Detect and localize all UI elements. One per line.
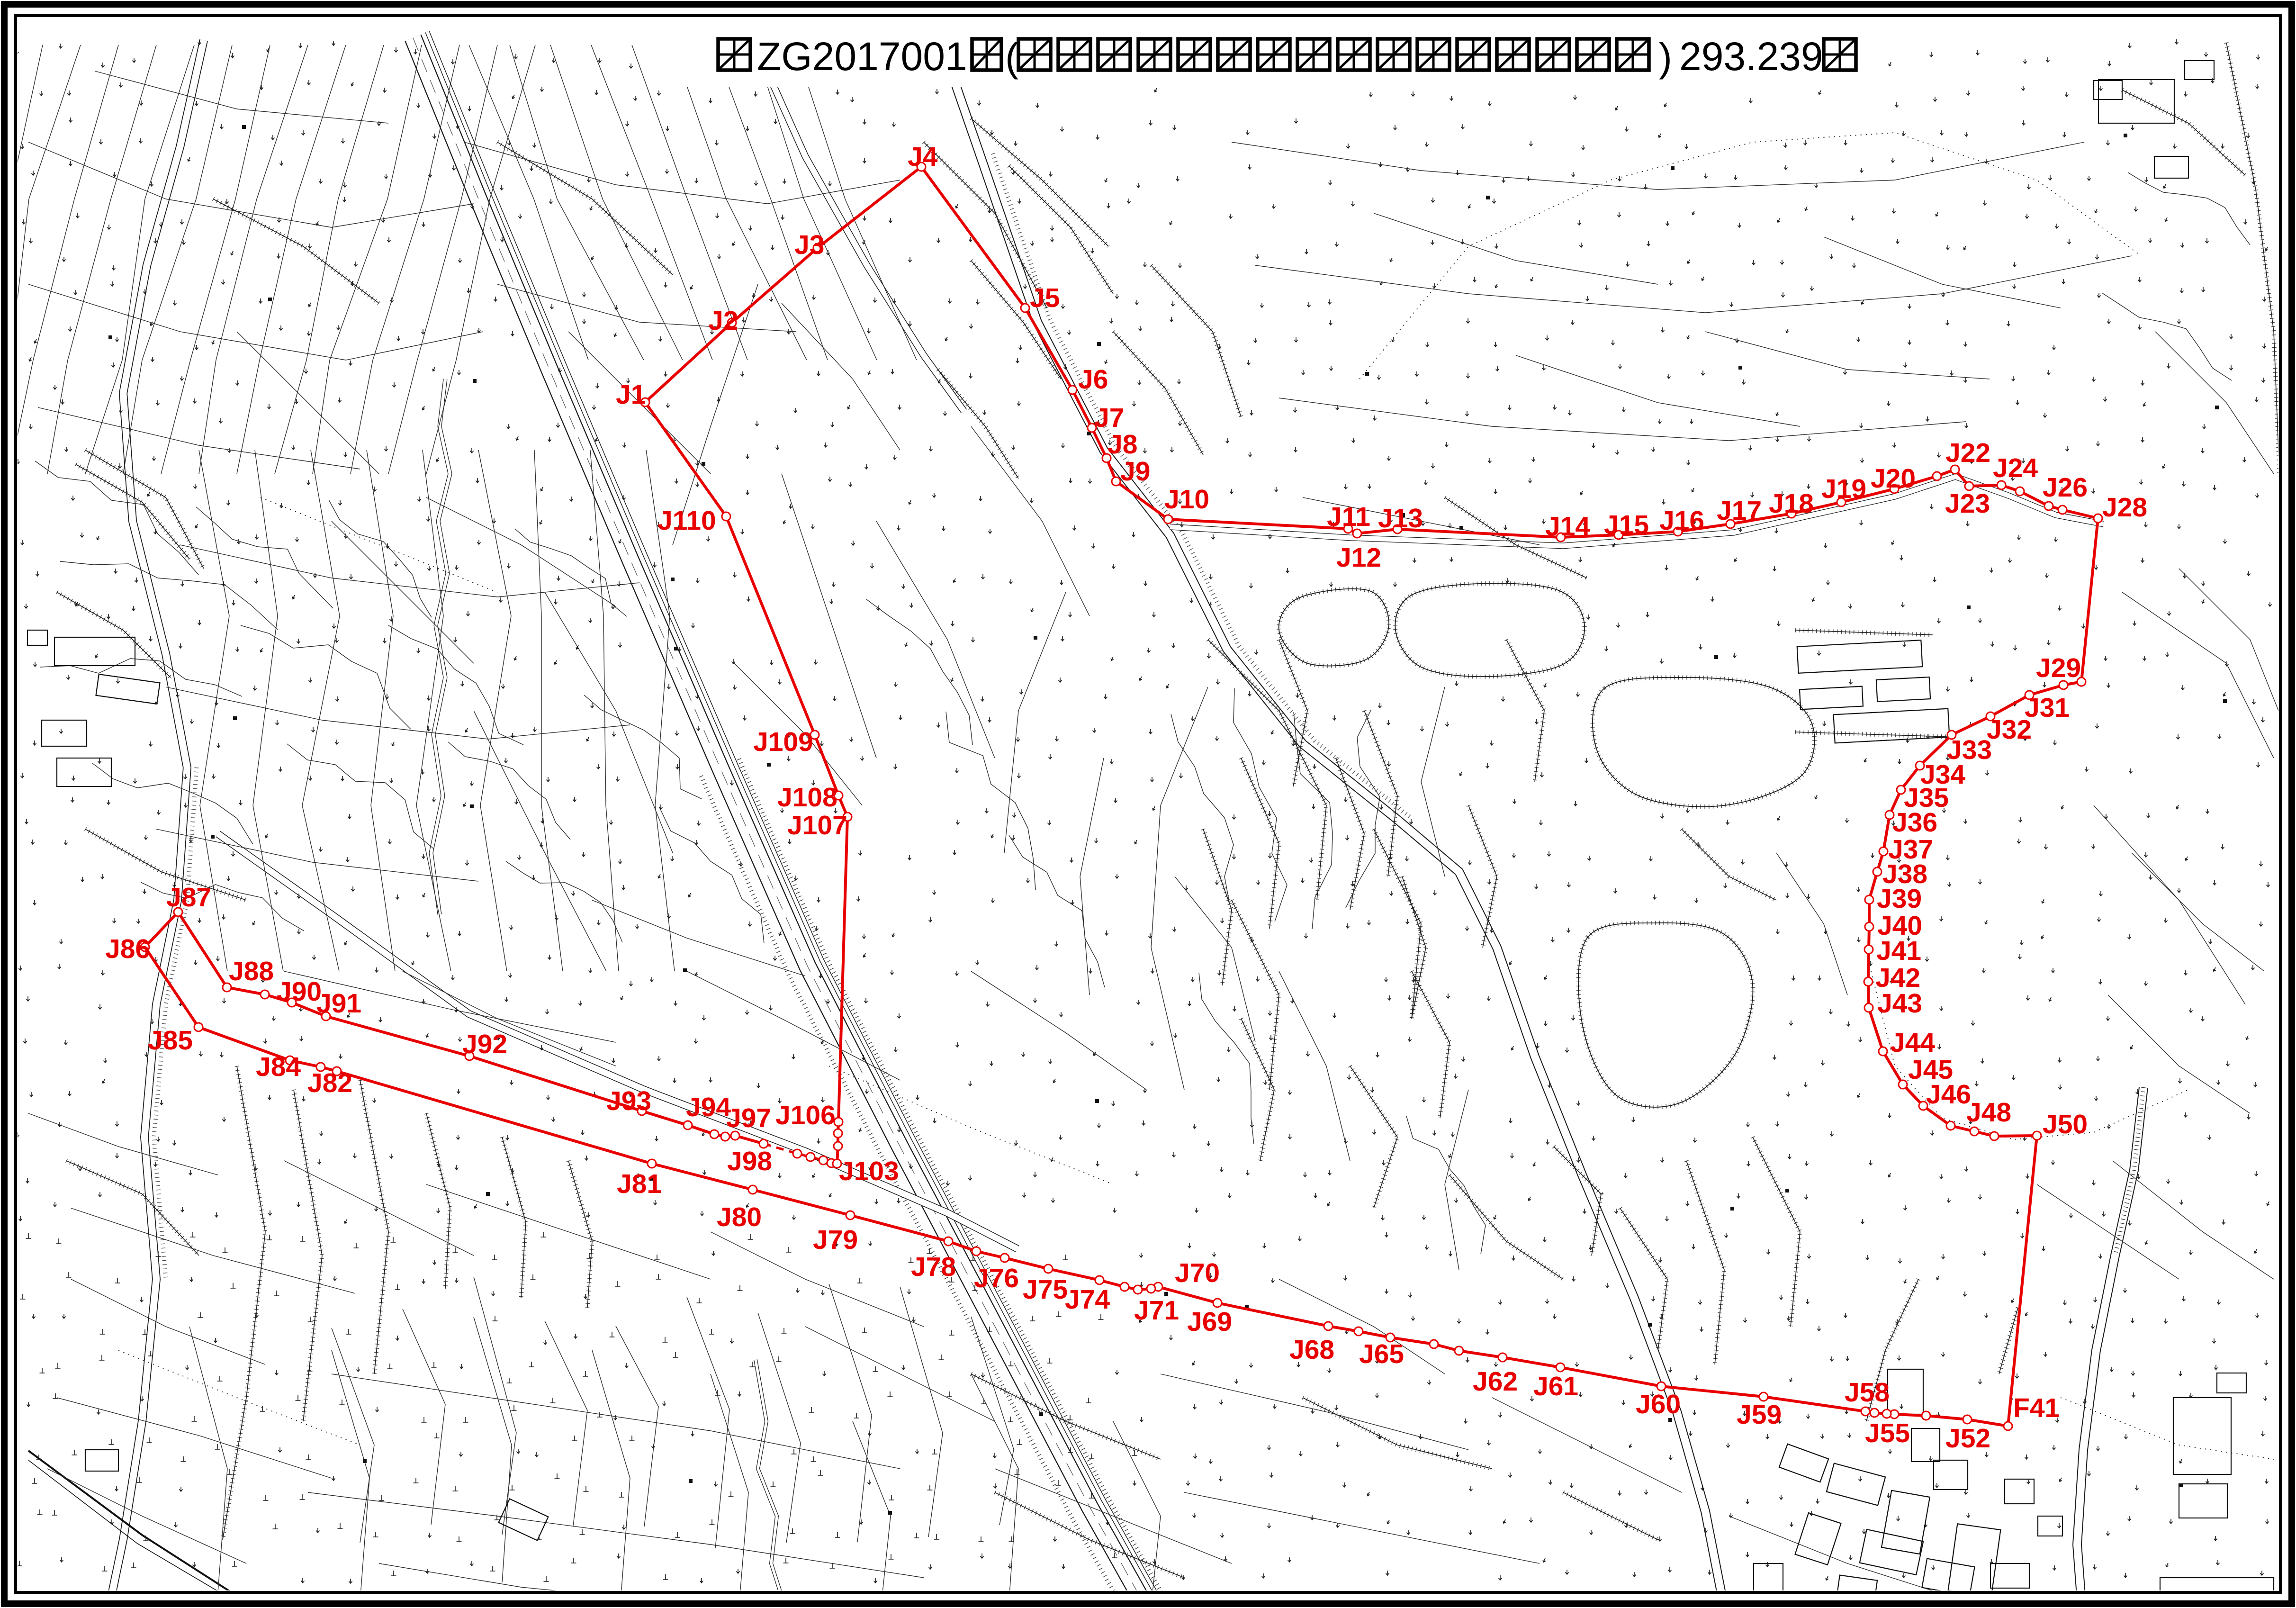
svg-text:J68: J68	[1289, 1335, 1334, 1365]
svg-text:J62: J62	[1473, 1366, 1518, 1397]
svg-text:J26: J26	[2043, 472, 2088, 503]
svg-text:J71: J71	[1134, 1295, 1179, 1326]
svg-text:ZG2017001: ZG2017001	[757, 34, 967, 79]
svg-text:J48: J48	[1966, 1097, 2011, 1128]
svg-text:J91: J91	[316, 988, 361, 1019]
svg-text:J107: J107	[787, 810, 847, 840]
svg-text:J58: J58	[1845, 1377, 1890, 1408]
svg-text:J32: J32	[1987, 714, 2032, 745]
svg-text:J70: J70	[1175, 1258, 1220, 1288]
svg-text:): )	[1659, 35, 1672, 80]
svg-text:J29: J29	[2036, 653, 2081, 683]
svg-text:J14: J14	[1545, 511, 1590, 542]
svg-text:J78: J78	[911, 1252, 956, 1282]
svg-text:J22: J22	[1945, 438, 1990, 468]
svg-text:J11: J11	[1327, 502, 1370, 532]
svg-text:J9: J9	[1120, 456, 1150, 487]
svg-text:J39: J39	[1877, 884, 1922, 914]
svg-text:J85: J85	[148, 1025, 193, 1056]
svg-text:J6: J6	[1078, 364, 1108, 395]
svg-text:J103: J103	[839, 1156, 899, 1186]
svg-text:J92: J92	[462, 1029, 507, 1059]
svg-text:J8: J8	[1107, 429, 1137, 460]
svg-text:J20: J20	[1871, 463, 1916, 494]
svg-text:J2: J2	[708, 306, 738, 336]
svg-text:F41: F41	[2013, 1393, 2060, 1423]
svg-text:J94: J94	[686, 1092, 731, 1122]
svg-text:J12: J12	[1336, 542, 1381, 573]
svg-text:J88: J88	[229, 956, 274, 986]
svg-text:J75: J75	[1023, 1274, 1068, 1305]
svg-text:J110: J110	[657, 506, 716, 536]
svg-text:J80: J80	[717, 1202, 762, 1232]
svg-text:J24: J24	[1993, 453, 2038, 483]
svg-text:J28: J28	[2102, 492, 2147, 523]
svg-text:J76: J76	[974, 1263, 1019, 1293]
svg-text:J36: J36	[1892, 807, 1937, 838]
svg-text:J87: J87	[166, 882, 211, 912]
svg-text:J65: J65	[1359, 1339, 1404, 1369]
svg-text:J5: J5	[1030, 283, 1060, 313]
svg-text:J90: J90	[277, 976, 322, 1007]
svg-text:J59: J59	[1737, 1400, 1782, 1430]
svg-text:J79: J79	[813, 1225, 858, 1255]
svg-text:J86: J86	[105, 934, 150, 964]
svg-text:J16: J16	[1659, 506, 1704, 536]
svg-text:J43: J43	[1877, 988, 1922, 1019]
svg-text:J97: J97	[726, 1103, 771, 1133]
svg-text:J61: J61	[1533, 1371, 1578, 1401]
svg-text:J17: J17	[1717, 496, 1762, 526]
svg-text:J106: J106	[775, 1100, 836, 1130]
svg-text:(: (	[1005, 35, 1018, 80]
svg-text:J81: J81	[617, 1169, 662, 1199]
svg-text:J18: J18	[1769, 488, 1814, 519]
svg-text:J41: J41	[1876, 936, 1921, 966]
svg-text:J1: J1	[616, 379, 646, 410]
svg-text:J84: J84	[256, 1052, 301, 1082]
svg-text:J69: J69	[1187, 1307, 1232, 1337]
svg-text:293.239: 293.239	[1679, 34, 1823, 79]
svg-text:J44: J44	[1890, 1028, 1935, 1058]
svg-text:J93: J93	[606, 1086, 651, 1116]
svg-text:J10: J10	[1164, 484, 1209, 515]
svg-text:J52: J52	[1945, 1423, 1990, 1454]
svg-text:J55: J55	[1865, 1418, 1910, 1448]
svg-text:J108: J108	[777, 782, 837, 813]
svg-text:J15: J15	[1604, 510, 1649, 540]
svg-text:J109: J109	[753, 727, 813, 757]
svg-text:J13: J13	[1378, 503, 1423, 533]
svg-text:J74: J74	[1065, 1284, 1110, 1315]
svg-text:J50: J50	[2043, 1109, 2088, 1139]
svg-text:J19: J19	[1821, 474, 1866, 504]
svg-text:J23: J23	[1945, 488, 1990, 519]
svg-text:J7: J7	[1094, 403, 1124, 433]
svg-text:J4: J4	[908, 142, 938, 172]
svg-text:J98: J98	[727, 1146, 772, 1176]
svg-text:J3: J3	[794, 230, 824, 260]
svg-text:J46: J46	[1926, 1079, 1971, 1110]
svg-text:J60: J60	[1636, 1389, 1681, 1419]
svg-text:J82: J82	[307, 1068, 352, 1098]
